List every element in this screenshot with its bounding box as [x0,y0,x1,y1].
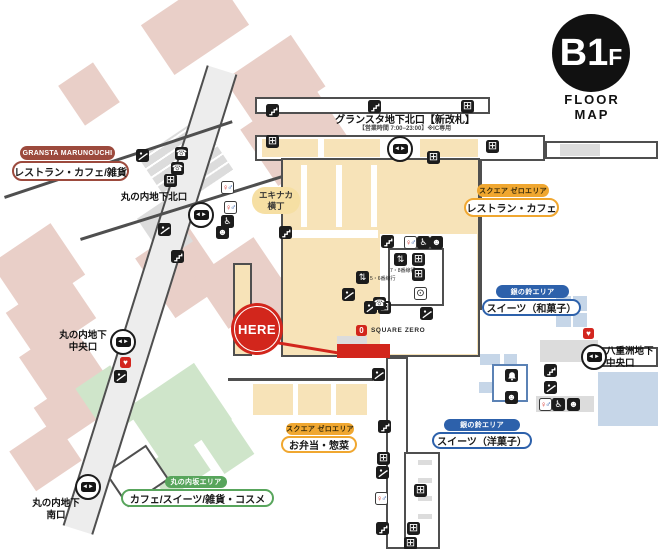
exit-marunouchi-central: 丸の内地下 中央口 [56,330,110,355]
baby-room-icon: ☻ [430,236,443,249]
area-category-marunouchi-zaka: カフェ/スイーツ/雑貨・コスメ [121,489,274,507]
escalator-icon [158,223,171,236]
toilet-icon: ♀♂ [224,201,237,214]
area-category-gransta-marunouchi: レストラン・カフェ/雑貨 [12,161,129,181]
stairs-icon [279,226,292,239]
square-zero-logo-icon: 0 [356,325,367,336]
exit-line: 丸の内地下 [59,330,107,341]
floor-map: ⊞ ⊞ ⊞ ⊞ ⊞ ⊞ ⊞ ⊞ ⊞ ⊞ ⊞ ⊞ ☎ ☎ ☎ ♀♂ ♀♂ ♀♂ ♀… [0,0,658,549]
block-gray [560,144,600,156]
silver-bell-icon [505,369,518,382]
ekinaka-yokocho-label: エキナカ 横丁 [252,187,300,214]
aisle [371,165,377,227]
exit-line: 南口 [46,510,65,521]
elevator-icon: ⇅ [356,271,369,284]
floor-badge: B1F [552,14,630,92]
block-gray [337,336,367,344]
accessible-toilet-icon: ♿ [417,236,430,249]
locker-icon: ⊞ [486,140,499,153]
aisle [301,165,307,227]
highlighted-shop [337,344,390,358]
escalator-icon [114,370,127,383]
floor-badge-main: B1 [560,14,609,92]
here-marker: HERE [231,303,283,355]
exit-line: 八重洲地下 [606,346,654,357]
shelf [418,460,432,465]
aisle [283,230,378,238]
square-zero-logo-text: SQUARE ZERO [371,327,425,334]
ticket-gate-icon: ◄► [75,474,101,500]
stairs-icon [171,250,184,263]
toilet-icon: ♀♂ [221,181,234,194]
escalator-icon [372,368,385,381]
toilet-icon: ♀♂ [539,398,552,411]
shelf [418,478,432,483]
escalator-icon [420,307,433,320]
block-cream [324,139,380,157]
area-tag-ginno-suzu-south: 銀の鈴エリア [444,419,520,431]
area-tag-ginno-suzu-east: 銀の鈴エリア [496,285,569,298]
stairs-icon [376,522,389,535]
area-category-ginno-suzu-east: スイーツ（和菓子） [482,299,581,316]
here-label: HERE [234,306,280,352]
elevator-5-6-label: 5・6番線行 [370,275,396,282]
escalator-icon [136,149,149,162]
toilet-icon: ♀♂ [375,492,388,505]
stairs-icon [368,100,381,113]
area-category-square-zero-east: レストラン・カフェ [464,198,559,217]
aisle [336,165,342,227]
locker-icon: ⊞ [427,151,440,164]
exit-yaesu-central: 八重洲地下 中央口 [606,346,658,371]
ticket-gate-icon: ◄► [581,344,607,370]
clock-icon: ⊙ [414,287,427,300]
boundary-line [228,378,373,381]
area-tag-square-zero-east: スクエア ゼロエリア [477,184,549,197]
toilet-icon: ♀♂ [404,236,417,249]
block-pink [141,0,249,75]
block-blue [598,372,658,426]
accessible-toilet-icon: ♿ [552,398,565,411]
exit-line: 中央口 [606,358,635,369]
exit-marunouchi-south: 丸の内地下 南口 [28,498,84,523]
baby-room-icon: ☻ [567,398,580,411]
area-category-ginno-suzu-south: スイーツ（洋菓子） [432,432,532,449]
baby-room-icon: ☻ [505,391,518,404]
escalator-icon [376,466,389,479]
floor-badge-suffix: F [608,20,622,94]
area-tag-marunouchi-zaka: 丸の内坂エリア [165,476,227,488]
block-cream [336,384,367,415]
locker-icon: ⊞ [164,174,177,187]
stairs-icon [266,104,279,117]
area-tag-gransta-marunouchi: GRANSTA MARUNOUCHI [20,146,115,160]
locker-icon: ⊞ [377,452,390,465]
ekinaka-line1: エキナカ [259,190,293,201]
phone-icon: ☎ [171,162,184,175]
locker-icon: ⊞ [404,537,417,549]
locker-icon: ⊞ [266,135,279,148]
phone-icon: ☎ [175,147,188,160]
exit-line: 中央口 [69,342,98,353]
exit-gransta-north-note: 【営業時間 7:00−23:00】※IC専用 [330,126,480,134]
exit-line: 丸の内地下 [32,498,80,509]
escalator-icon [544,381,557,394]
phone-icon: ☎ [373,297,386,310]
stairs-icon [544,364,557,377]
locker-icon: ⊞ [414,484,427,497]
area-category-square-zero-south: お弁当・惣菜 [281,436,357,453]
stairs-icon [378,420,391,433]
escalator-icon [342,288,355,301]
shelf [418,514,432,519]
block-pink [58,62,120,125]
exit-marunouchi-north: 丸の内地下北口 [116,192,192,204]
locker-icon: ⊞ [407,522,420,535]
floor-map-caption: FLOOR MAP [546,92,638,122]
locker-icon: ⊞ [412,253,425,266]
ticket-gate-icon: ◄► [387,136,413,162]
block-cream [253,384,293,415]
block-cream [298,384,331,415]
aed-icon: ♥ [120,357,131,368]
elevator-7-8-label: 7・8番線行 [390,267,416,274]
stairs-icon [381,235,394,248]
area-tag-square-zero-south: スクエア ゼロエリア [286,423,354,435]
baby-room-icon: ☻ [216,226,229,239]
locker-icon: ⊞ [461,100,474,113]
aed-icon: ♥ [583,328,594,339]
ticket-gate-icon: ◄► [110,329,136,355]
ticket-gate-icon: ◄► [188,202,214,228]
elevator-icon: ⇅ [394,253,407,266]
ekinaka-line2: 横丁 [267,201,284,212]
